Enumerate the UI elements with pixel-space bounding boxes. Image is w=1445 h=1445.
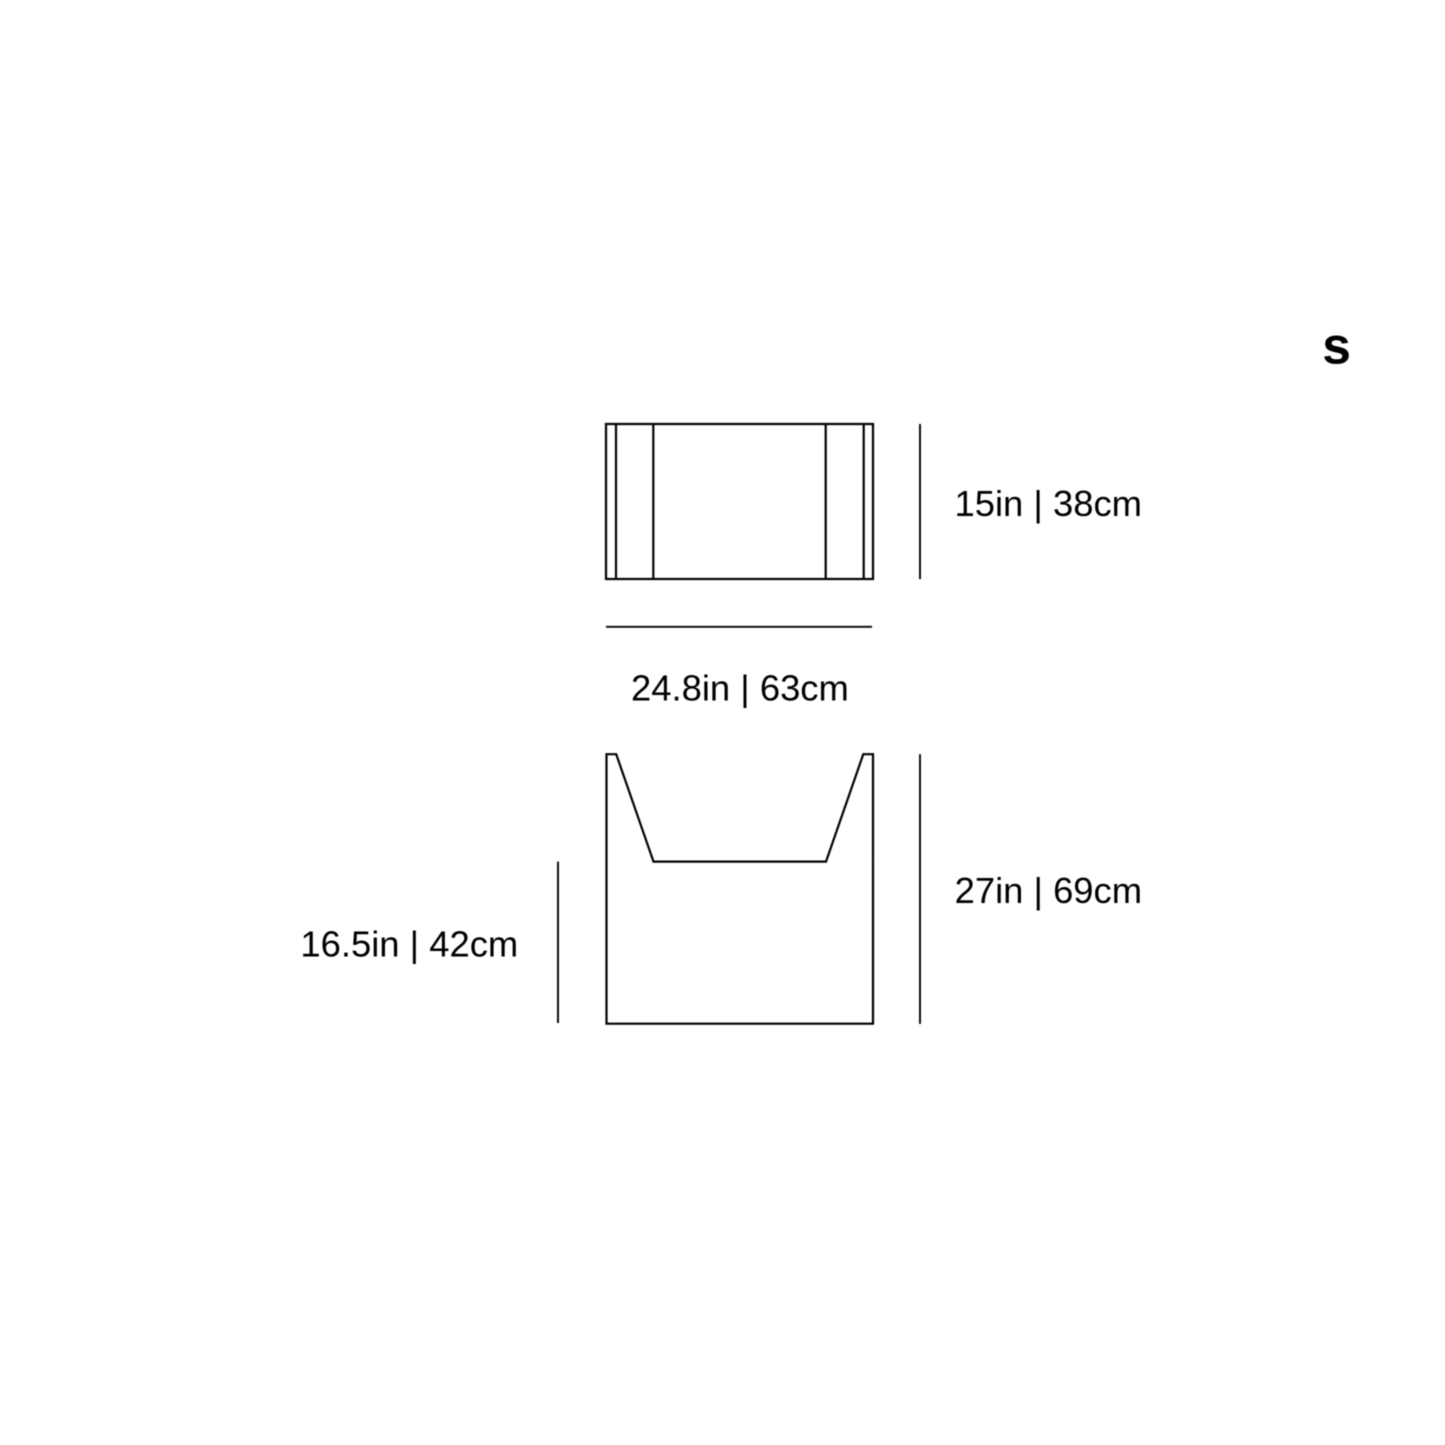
svg-text:s: s (1322, 317, 1351, 375)
svg-text:24.8in | 63cm: 24.8in | 63cm (631, 667, 849, 708)
svg-text:15in | 38cm: 15in | 38cm (955, 483, 1142, 524)
svg-text:27in | 69cm: 27in | 69cm (955, 870, 1142, 911)
svg-text:16.5in | 42cm: 16.5in | 42cm (300, 923, 518, 964)
